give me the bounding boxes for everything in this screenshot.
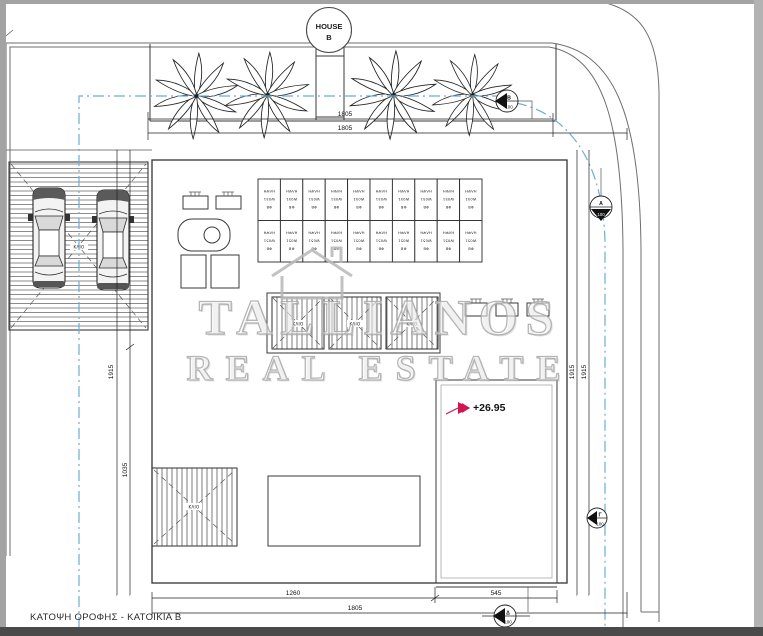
roof-box [211,255,239,288]
ac-unit [465,299,487,316]
ac-unit [216,192,241,209]
palm-tree [349,51,437,139]
skylight-label: ΚΛΙΟ [350,322,361,327]
water-tank [178,219,230,251]
skylight-label: ΚΛΙΟ [407,322,418,327]
skylight: ΚΛΙΟ [386,297,438,349]
svg-text:A: A [599,201,603,207]
roof-box [181,255,206,288]
dim-label: 1035 [122,462,129,477]
svg-text:100: 100 [504,620,512,625]
entry-path-strip [316,43,344,120]
skylight-band: ΚΛΙΟ ΚΛΙΟ ΚΛΙΟ [267,293,440,353]
dim-label: 1805 [338,125,353,132]
svg-text:100: 100 [597,212,605,217]
dim-label: 1805 [348,605,363,612]
section-marker-b: B 100 [495,90,532,119]
dim-label: 1915 [581,364,588,379]
palm-tree [225,52,310,138]
dim-label: 545 [491,590,502,597]
house-badge-line2: B [326,33,332,42]
frame-bottom-bar [0,627,763,636]
house-badge-line1: HOUSE [316,22,343,31]
ac-unit [496,299,518,316]
road-curb [597,1,659,622]
elevation-value: +26.95 [473,402,506,414]
car-top-view [28,188,70,288]
setback-line-blue [516,103,605,628]
section-marker-c: Γ 100 [587,508,607,528]
dim-label: 1260 [286,590,301,597]
pergola-label: ΚΛΙΟ [189,505,200,510]
car-top-view [92,190,134,290]
house-badge: HOUSE B [307,8,352,53]
frame-top [0,0,763,4]
frame-left [0,0,6,636]
section-marker-d: Δ 100 [482,587,530,627]
skylight: ΚΛΙΟ [329,297,381,349]
skylight-label: ΚΛΙΟ [293,322,304,327]
skylight: ΚΛΙΟ [272,297,324,349]
roof-opening [268,476,420,546]
ac-unit [527,299,549,316]
dim-label: 1915 [108,364,115,379]
section-marker-a: A 100 [590,168,612,221]
solar-panel-array: ΦΒW051ΗΛΨΗΦΒW051ΗΛΨΗΦΒW051ΗΛΨΗΦΒW051ΗΛΨΗ… [258,179,482,262]
frame-right [754,0,763,636]
floor-plan-viewer: ΚΛΙΟ ΦΒW051ΗΛΨΗΦΒW051ΗΛΨΗΦΒW051ΗΛΨΗΦΒW05… [0,0,763,636]
lower-pergola: ΚΛΙΟ [152,468,237,546]
dim-label: 1915 [569,364,576,379]
svg-text:B: B [507,96,511,102]
svg-text:100: 100 [596,522,604,527]
svg-text:100: 100 [505,105,513,110]
ac-unit [183,192,208,209]
svg-text:Δ: Δ [506,611,510,617]
roof-plan-drawing: ΚΛΙΟ ΦΒW051ΗΛΨΗΦΒW051ΗΛΨΗΦΒW051ΗΛΨΗΦΒW05… [0,0,763,636]
drawing-title: ΚΑΤΟΨΗ ΟΡΟΦΗΣ - ΚΑΤΟΙΚΙΑ Β [30,612,182,623]
elevation-marker: +26.95 [446,402,506,414]
dim-label: 1805 [338,111,353,118]
